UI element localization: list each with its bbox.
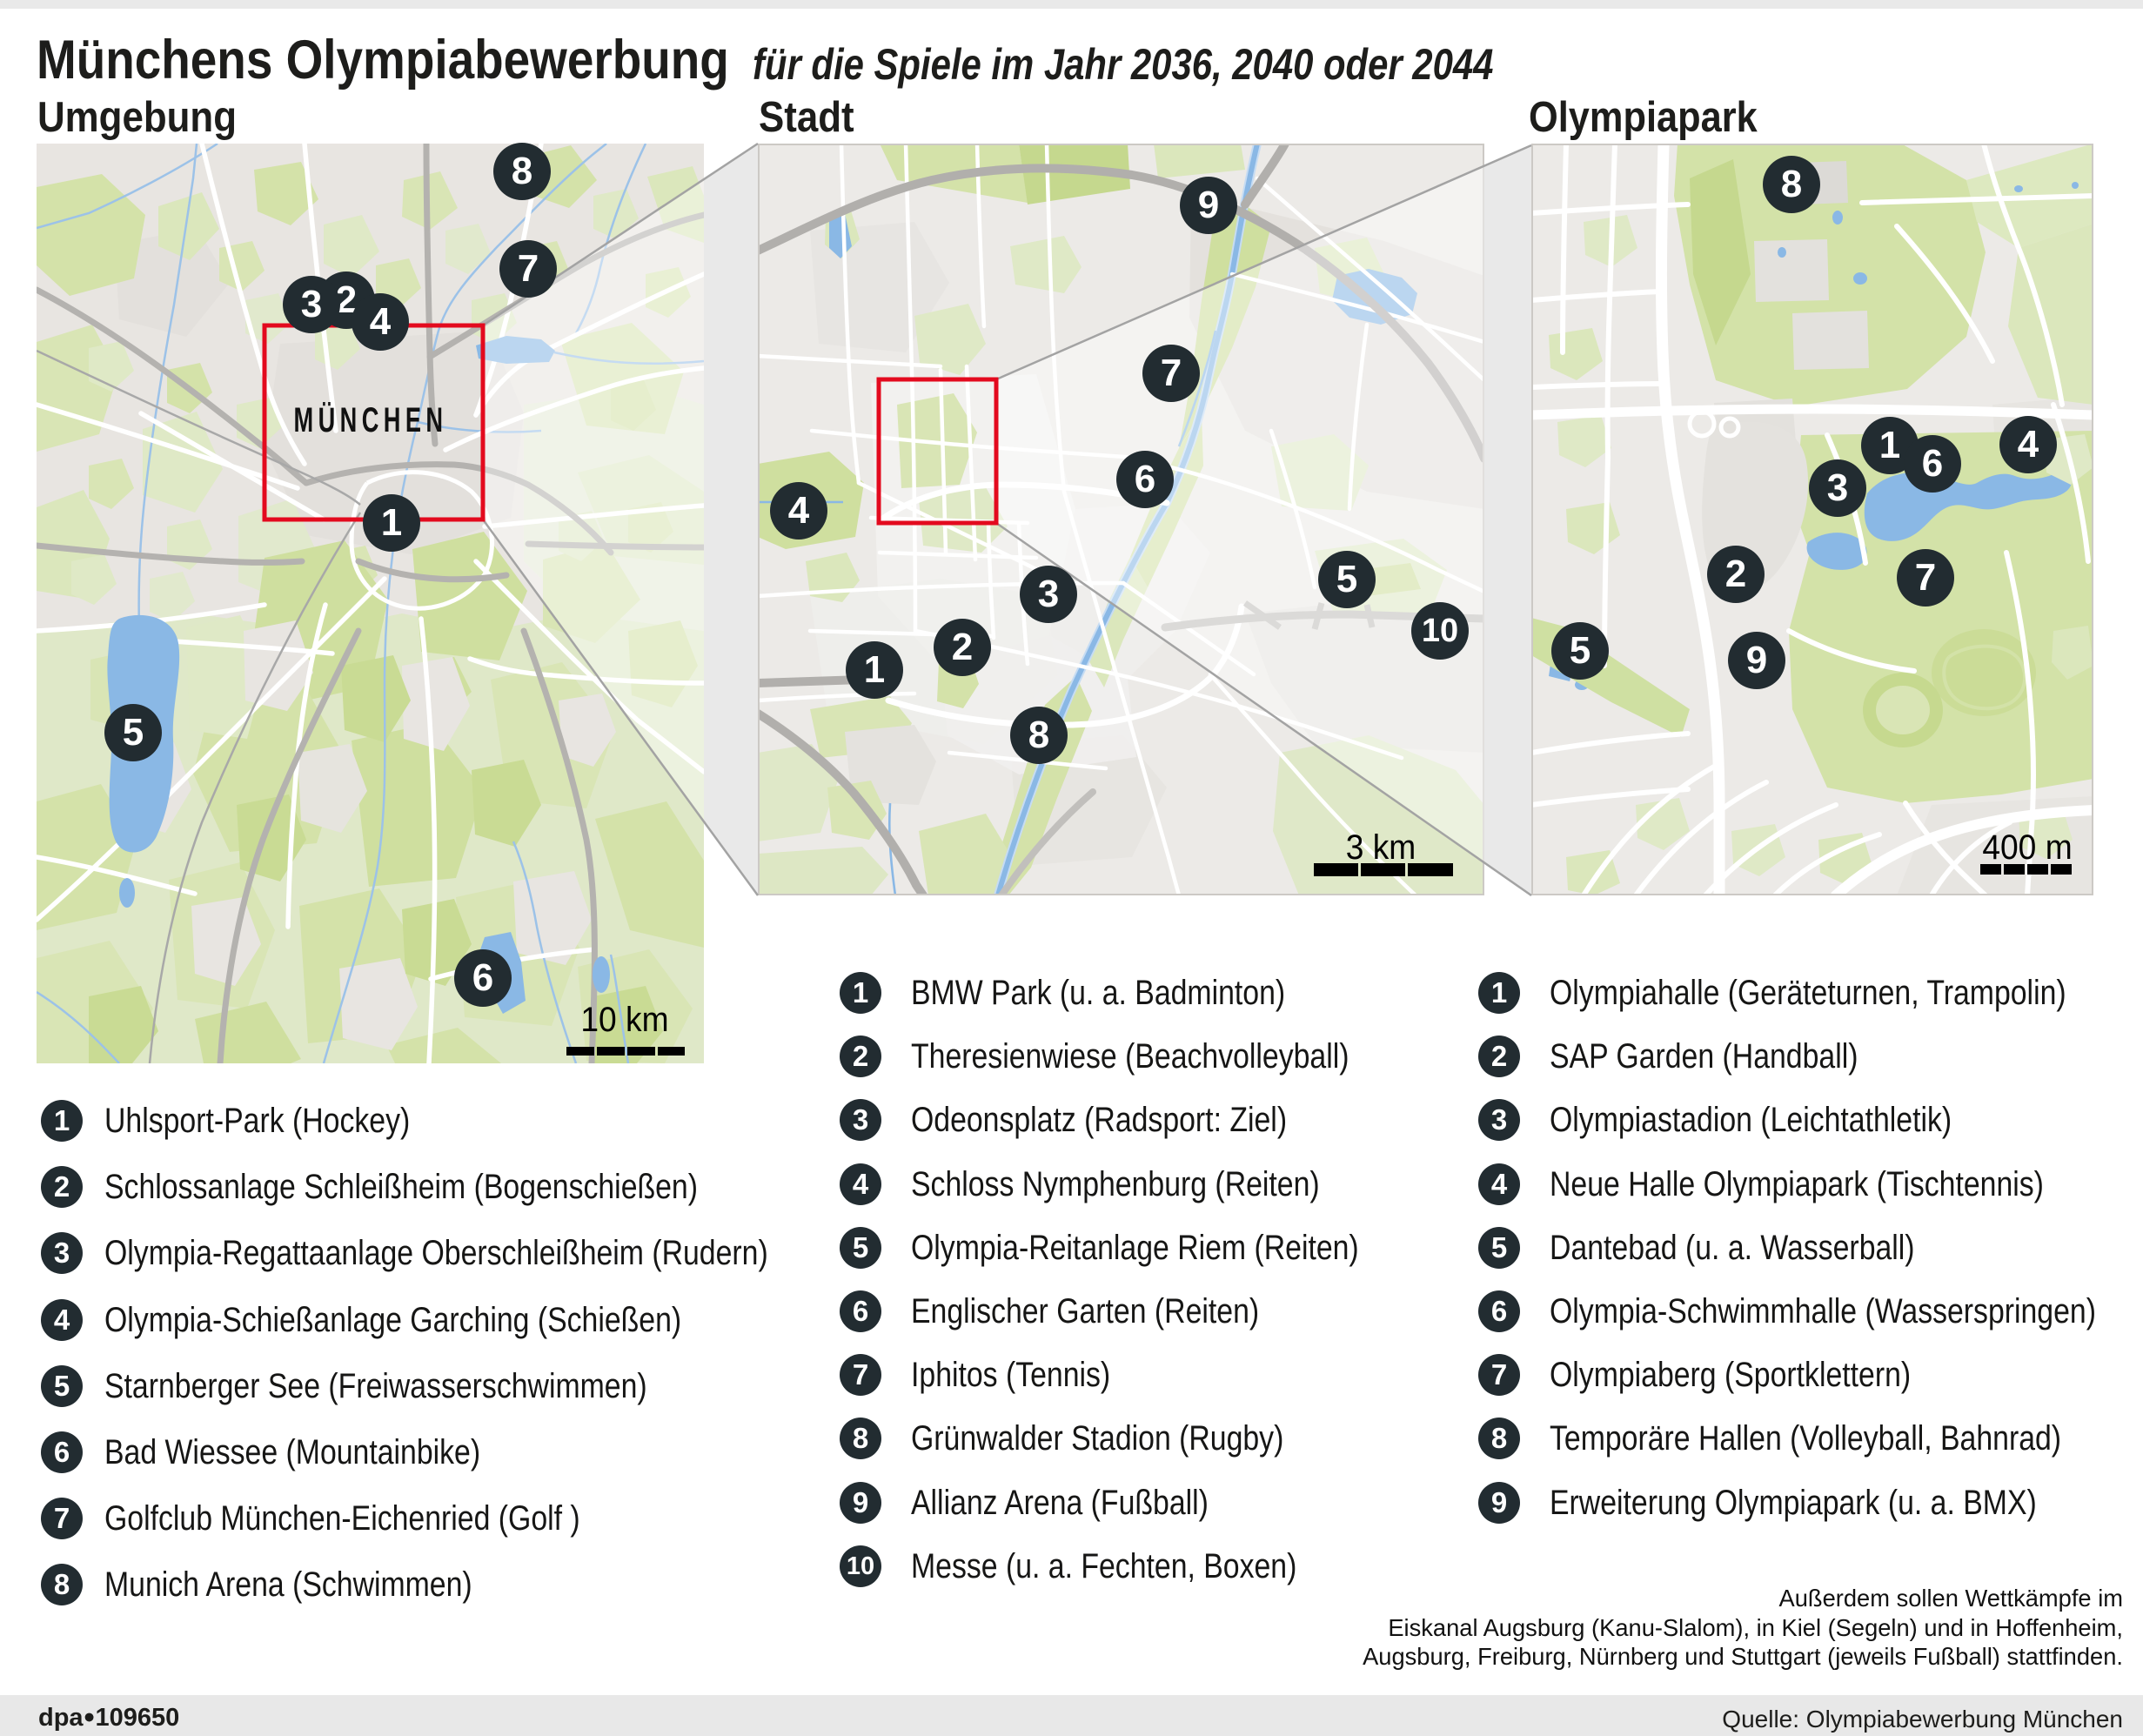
svg-text:10 km: 10 km [580,1001,668,1040]
svg-text:MÜNCHEN: MÜNCHEN [293,400,447,440]
svg-text:3 km: 3 km [1346,828,1416,868]
svg-text:400 m: 400 m [1982,828,2072,868]
